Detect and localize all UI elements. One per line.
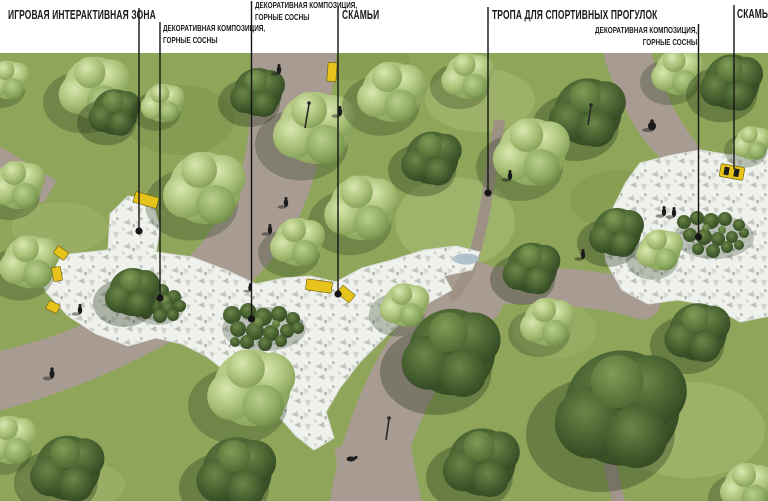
water-puddle	[453, 254, 479, 265]
label-decorative-pines-right: ДЕКОРАТИВНАЯ КОМПОЗИЦИЯ,ГОРНЫЕ СОСНЫ	[595, 25, 697, 48]
path-bottom-exit-tail	[372, 442, 384, 501]
label-decorative-pines-left: ДЕКОРАТИВНАЯ КОМПОЗИЦИЯ,ГОРНЫЕ СОСНЫ	[163, 23, 265, 46]
bench	[327, 62, 337, 82]
label-sport-trail: ТРОПА ДЛЯ СПОРТИВНЫХ ПРОГУЛОК	[492, 7, 657, 22]
park-masterplan-visual: ИГРОВАЯ ИНТЕРАКТИВНАЯ ЗОНА ДЕКОРАТИВНАЯ …	[0, 0, 768, 501]
park-render	[0, 0, 768, 501]
label-play-zone: ИГРОВАЯ ИНТЕРАКТИВНАЯ ЗОНА	[8, 7, 156, 22]
label-benches-center: СКАМЬИ	[342, 7, 379, 22]
label-bench-right: СКАМЬЯ	[737, 6, 768, 21]
